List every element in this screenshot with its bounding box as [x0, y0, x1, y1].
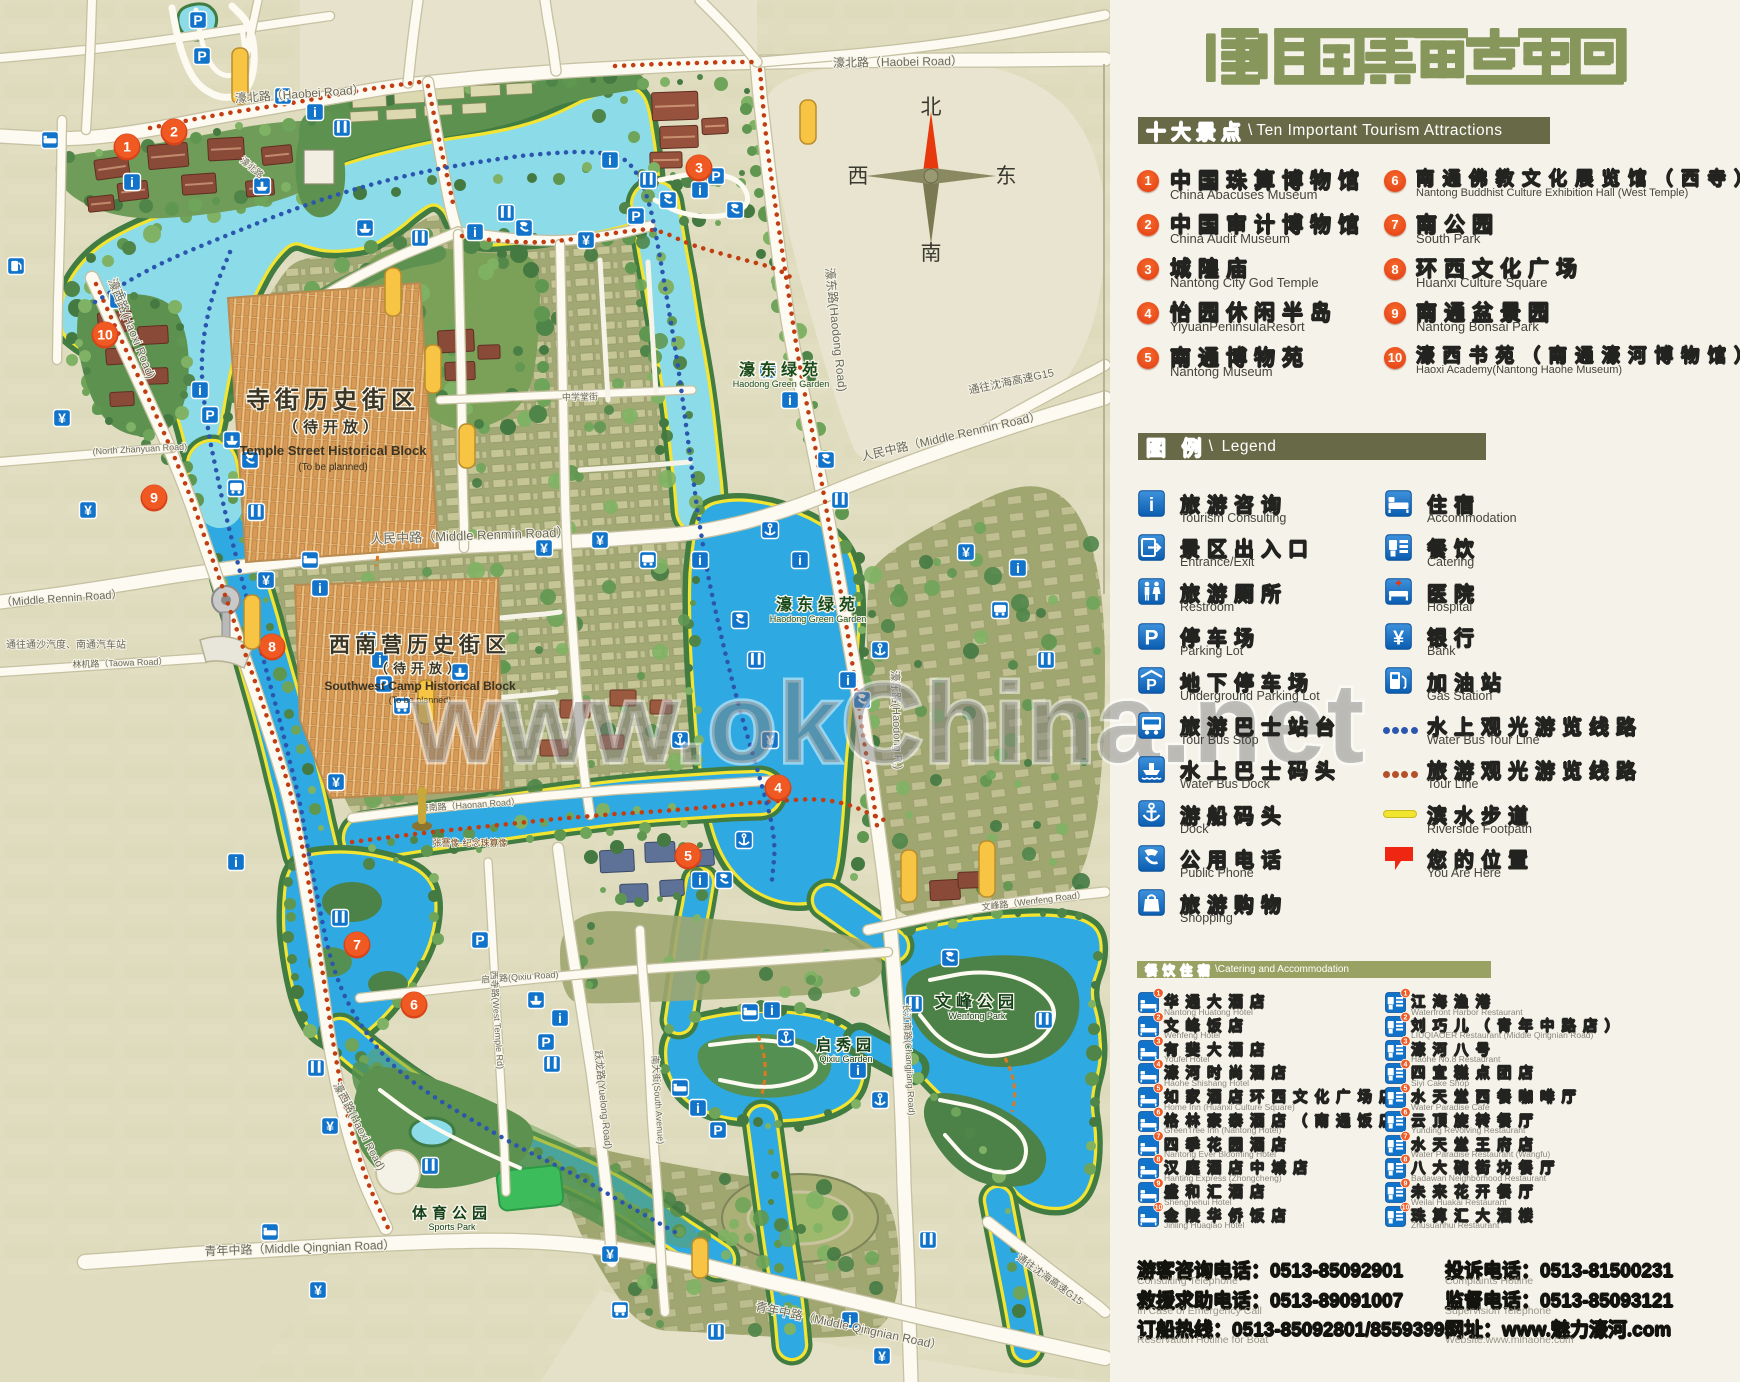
svg-text:¥: ¥	[58, 410, 66, 426]
svg-text:2: 2	[1404, 1014, 1408, 1021]
svg-text:i: i	[698, 182, 702, 198]
svg-text:(To be planned): (To be planned)	[389, 695, 452, 705]
svg-text:6: 6	[1157, 1109, 1161, 1116]
svg-text:6: 6	[410, 997, 418, 1013]
svg-text:¥: ¥	[766, 732, 774, 748]
svg-text:3: 3	[695, 160, 703, 176]
svg-text:10: 10	[1155, 1204, 1163, 1211]
svg-text:Sports Park: Sports Park	[428, 1222, 476, 1232]
svg-text:i: i	[698, 552, 702, 568]
svg-text:P: P	[711, 168, 720, 184]
svg-text:濠北路（Haobei Road）: 濠北路（Haobei Road）	[833, 53, 963, 70]
svg-text:4: 4	[1404, 1062, 1408, 1069]
svg-text:9: 9	[1157, 1180, 1161, 1187]
svg-text:10: 10	[97, 327, 113, 343]
svg-text:7: 7	[353, 937, 361, 953]
svg-text:i: i	[846, 672, 850, 688]
svg-text:(To be planned): (To be planned)	[298, 462, 368, 473]
svg-text:P: P	[475, 932, 484, 948]
svg-text:东: 东	[996, 165, 1017, 188]
svg-text:¥: ¥	[582, 232, 590, 248]
svg-text:6: 6	[1404, 1109, 1408, 1116]
svg-text:濠东绿苑: 濠东绿苑	[776, 595, 860, 614]
svg-text:i: i	[198, 382, 202, 398]
svg-text:4: 4	[1157, 1062, 1161, 1069]
svg-text:西南营历史街区: 西南营历史街区	[329, 633, 511, 657]
svg-text:3: 3	[1157, 1038, 1161, 1045]
svg-text:P: P	[1144, 626, 1158, 649]
svg-text:（待开放）: （待开放）	[375, 661, 465, 676]
svg-text:体育公园: 体育公园	[412, 1204, 492, 1222]
svg-text:i: i	[798, 552, 802, 568]
svg-text:i: i	[234, 854, 238, 870]
svg-text:张謇像·纪念珠算像: 张謇像·纪念珠算像	[433, 837, 508, 848]
svg-text:濠东绿苑: 濠东绿苑	[739, 360, 823, 379]
svg-text:i: i	[856, 1062, 860, 1078]
svg-text:启秀园: 启秀园	[816, 1036, 876, 1054]
svg-text:¥: ¥	[962, 544, 970, 560]
svg-text:¥: ¥	[1393, 627, 1405, 649]
svg-text:Qixiu Garden: Qixiu Garden	[819, 1054, 872, 1064]
svg-text:10: 10	[1402, 1204, 1410, 1211]
svg-text:i: i	[473, 224, 477, 240]
svg-text:P: P	[713, 1122, 722, 1138]
svg-text:¥: ¥	[596, 532, 604, 548]
svg-text:¥: ¥	[878, 1348, 886, 1364]
svg-text:1: 1	[1404, 990, 1408, 997]
svg-text:（待开放）: （待开放）	[283, 418, 383, 436]
svg-text:i: i	[1149, 495, 1154, 516]
svg-text:文峰公园: 文峰公园	[935, 992, 1019, 1011]
svg-text:¥: ¥	[314, 1282, 322, 1298]
svg-text:Wenfong Park: Wenfong Park	[949, 1011, 1006, 1021]
svg-text:中学堂街: 中学堂街	[562, 391, 598, 403]
svg-text:北: 北	[921, 96, 942, 119]
svg-text:通往通沙汽度、南通汽车站: 通往通沙汽度、南通汽车站	[6, 638, 126, 651]
svg-text:寺街历史街区: 寺街历史街区	[246, 386, 420, 414]
svg-text:2: 2	[1157, 1014, 1161, 1021]
svg-text:i: i	[130, 174, 134, 190]
svg-text:9: 9	[1404, 1180, 1408, 1187]
svg-text:i: i	[696, 1100, 700, 1116]
svg-text:P: P	[197, 48, 206, 64]
svg-text:i: i	[1016, 560, 1020, 576]
svg-text:7: 7	[1157, 1133, 1161, 1140]
svg-text:¥: ¥	[332, 774, 340, 790]
svg-text:Temple Street Historical Block: Temple Street Historical Block	[240, 443, 428, 458]
svg-text:南: 南	[921, 242, 942, 265]
svg-text:Haodong Green Garden: Haodong Green Garden	[733, 379, 830, 389]
svg-text:3: 3	[1404, 1038, 1408, 1045]
svg-text:1: 1	[123, 139, 131, 155]
svg-text:i: i	[698, 872, 702, 888]
svg-text:5: 5	[684, 848, 692, 864]
svg-text:¥: ¥	[606, 1246, 614, 1262]
svg-text:5: 5	[1404, 1085, 1408, 1092]
svg-text:¥: ¥	[540, 540, 548, 556]
svg-text:¥: ¥	[84, 502, 92, 518]
svg-text:1: 1	[1157, 990, 1161, 997]
svg-text:i: i	[788, 392, 792, 408]
svg-text:P: P	[193, 12, 202, 28]
svg-text:¥: ¥	[326, 1118, 334, 1134]
svg-text:西: 西	[848, 165, 869, 188]
svg-text:i: i	[770, 1002, 774, 1018]
svg-text:P: P	[1146, 677, 1157, 694]
svg-text:9: 9	[150, 490, 158, 506]
svg-text:8: 8	[1157, 1157, 1161, 1164]
svg-text:i: i	[318, 580, 322, 596]
svg-text:2: 2	[170, 124, 178, 140]
svg-text:P: P	[631, 208, 640, 224]
svg-text:i: i	[558, 1010, 562, 1026]
svg-text:Haodong Green Garden: Haodong Green Garden	[770, 614, 867, 624]
svg-text:7: 7	[1404, 1133, 1408, 1140]
svg-text:¥: ¥	[262, 572, 270, 588]
svg-text:i: i	[313, 104, 317, 120]
svg-text:8: 8	[268, 639, 276, 655]
svg-text:P: P	[541, 1034, 550, 1050]
svg-text:Southwest Camp Historical Bloc: Southwest Camp Historical Block	[324, 679, 516, 693]
svg-text:i: i	[608, 152, 612, 168]
svg-text:8: 8	[1404, 1157, 1408, 1164]
svg-text:P: P	[205, 407, 214, 423]
svg-text:5: 5	[1157, 1085, 1161, 1092]
svg-text:4: 4	[774, 780, 782, 796]
